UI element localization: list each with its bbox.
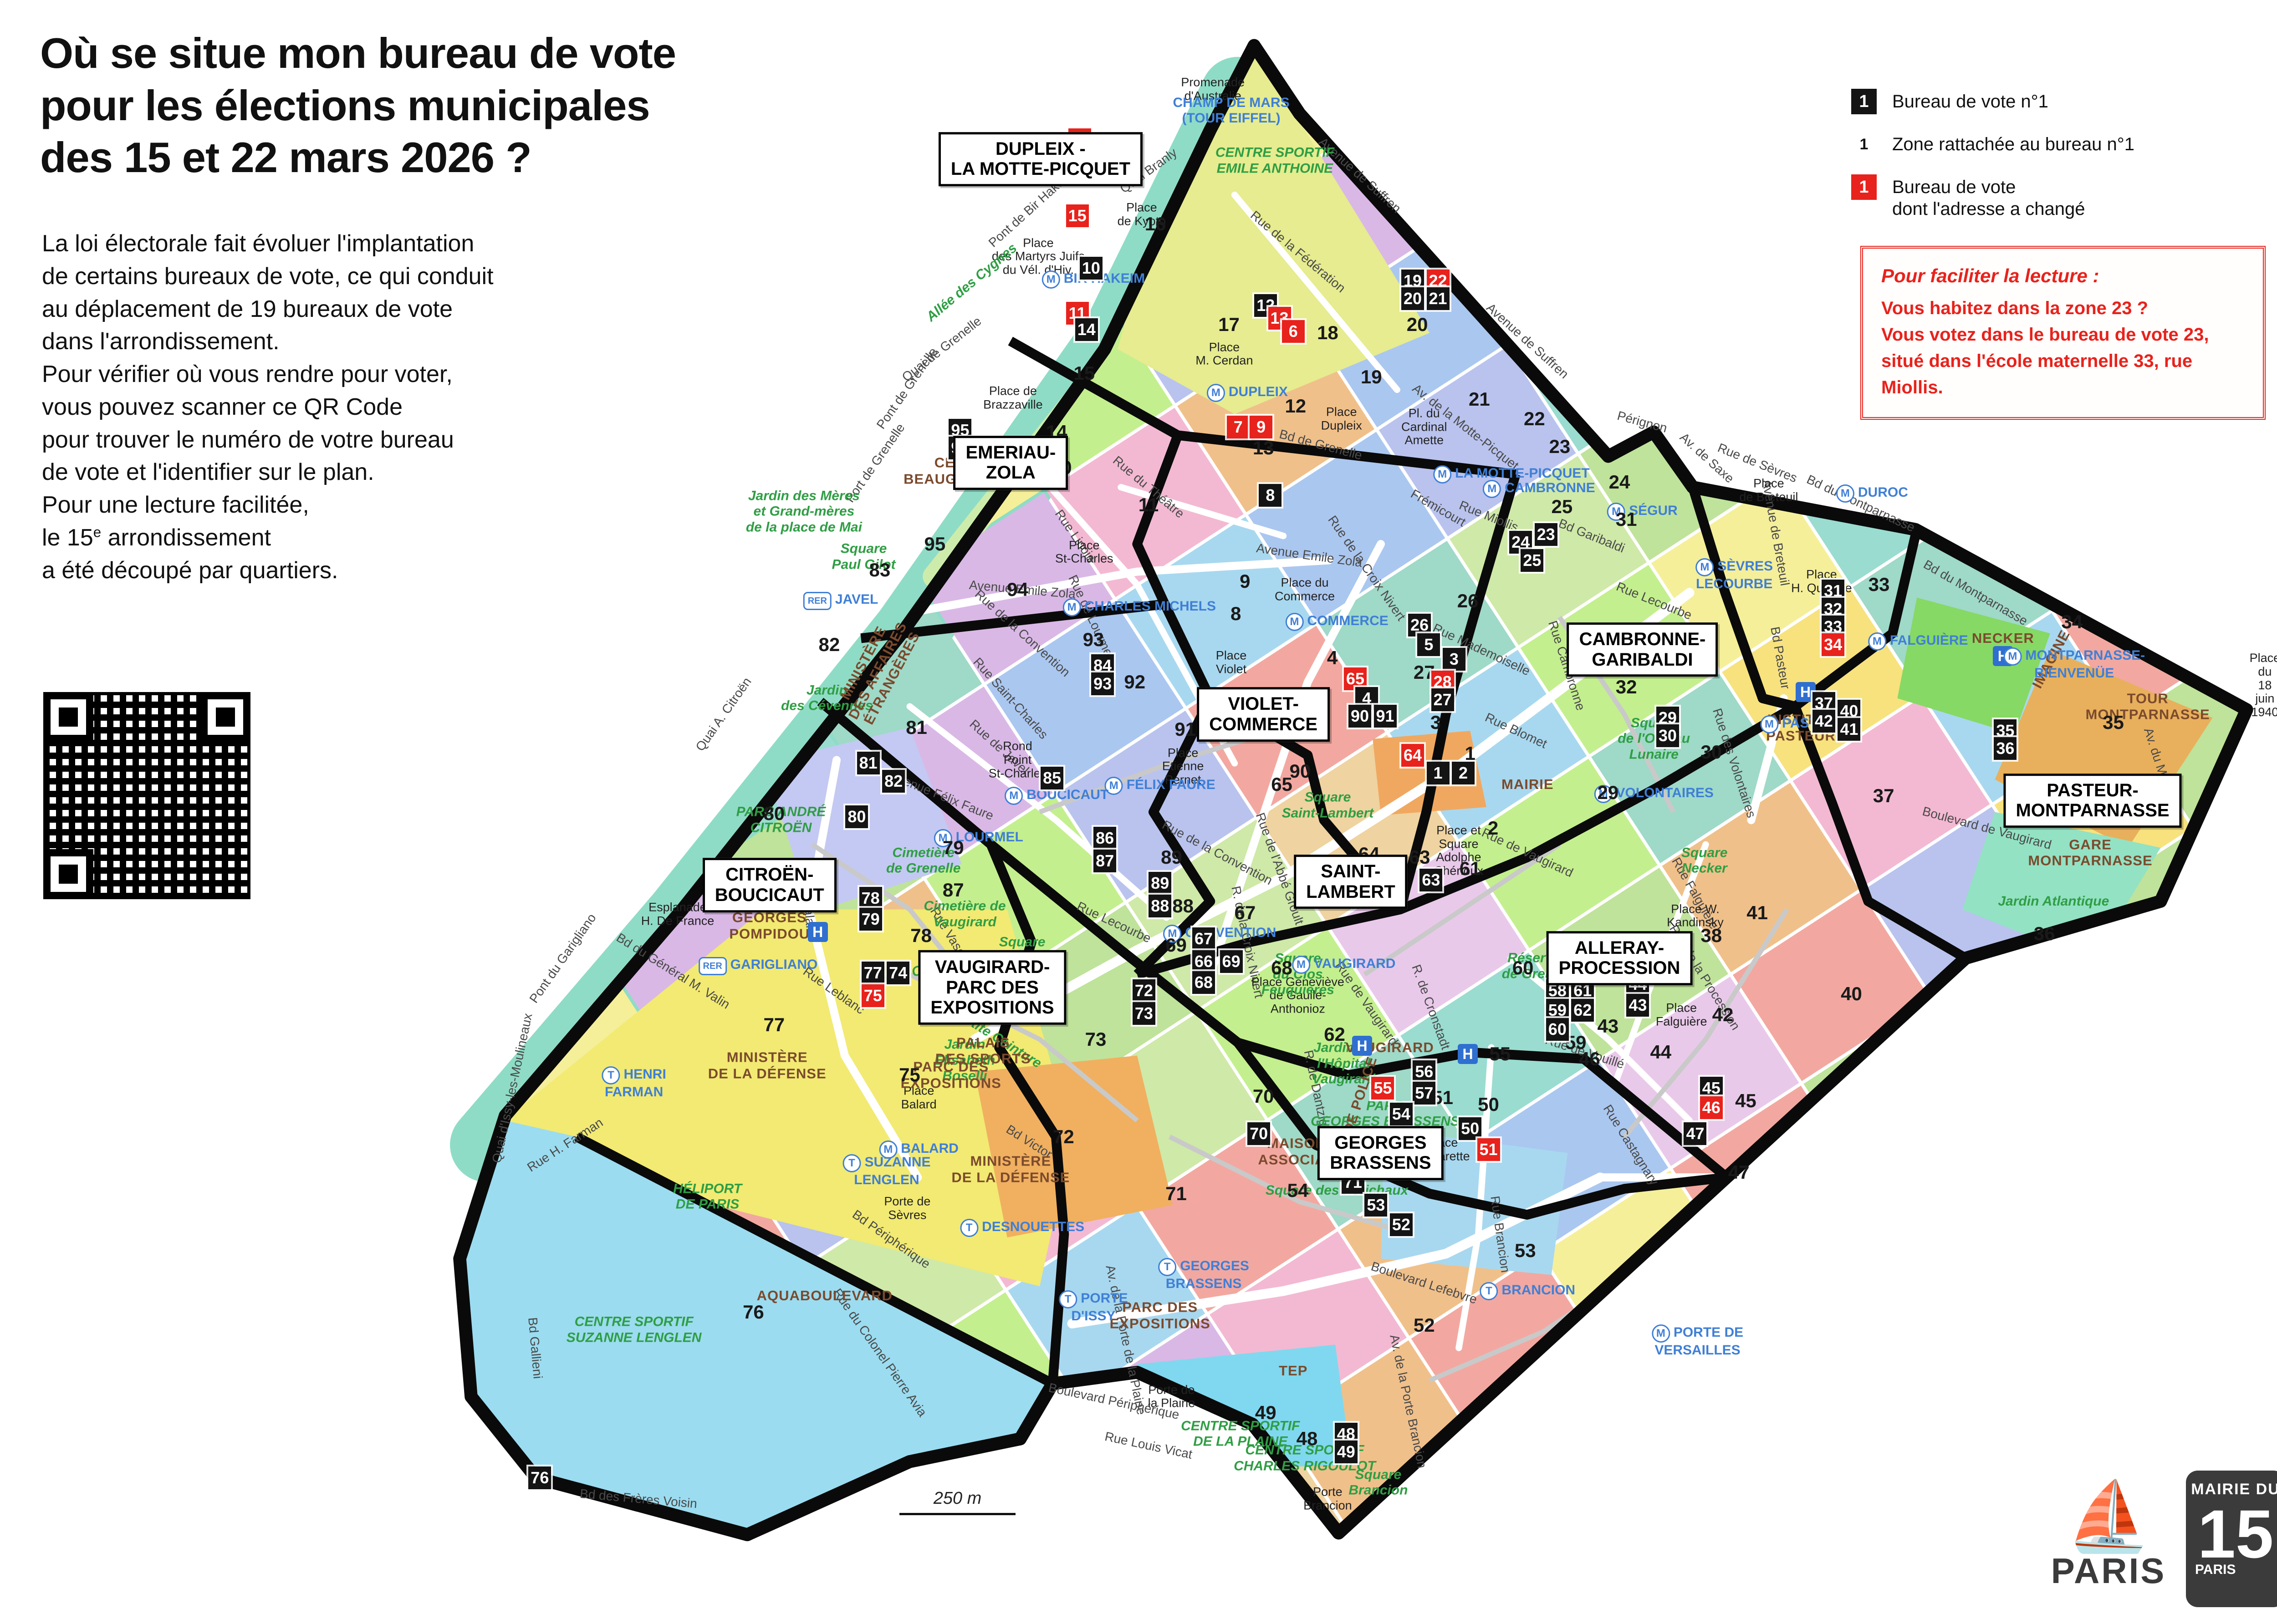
reading-help-line: Vous votez dans le bureau de vote 23, (1881, 321, 2245, 348)
paris-logo: ⛵ PARIS (2040, 1482, 2177, 1592)
legend-item-label: Zone rattachée au bureau n°1 (1892, 132, 2134, 155)
scale-label: 250 m (899, 1489, 1016, 1508)
scale-bar: 250 m (899, 1489, 1016, 1515)
page-title: Où se situe mon bureau de votepour les é… (40, 27, 723, 184)
paris-boat-icon: ⛵ (2040, 1482, 2177, 1550)
intro-paragraph: La loi électorale fait évoluer l'implant… (42, 228, 679, 587)
reading-help-line: Vous habitez dans la zone 23 ? (1881, 295, 2245, 321)
poster-page: 1617182019212215141011131298959483939291… (0, 0, 2277, 1624)
reading-help-line: situé dans l'école maternelle 33, rue Mi… (1881, 348, 2245, 401)
qr-finder-bl (43, 849, 93, 899)
map-legend: 1Bureau de vote n°11Zone rattachée au bu… (1851, 89, 2261, 237)
qr-finder-tl (43, 692, 93, 742)
legend-item: 1Bureau de vote n°1 (1851, 89, 2261, 114)
reading-help-title: Pour faciliter la lecture : (1881, 265, 2245, 287)
legend-item: 1Bureau de votedont l'adresse a changé (1851, 174, 2261, 220)
mairie-logo-number: 15 (2186, 1498, 2277, 1570)
reading-help-box: Pour faciliter la lecture : Vous habitez… (1860, 246, 2266, 420)
reading-help-lines: Vous habitez dans la zone 23 ?Vous votez… (1881, 295, 2245, 401)
qr-code (43, 692, 250, 899)
scale-line (899, 1513, 1016, 1515)
legend-red-badge-icon: 1 (1851, 174, 1877, 200)
legend-item-label: Bureau de votedont l'adresse a changé (1892, 174, 2085, 220)
legend-item-label: Bureau de vote n°1 (1892, 89, 2048, 112)
mairie-15-logo: MAIRIE DU 15 PARIS (2186, 1471, 2277, 1607)
legend-plain-number-icon: 1 (1851, 132, 1877, 157)
legend-item: 1Zone rattachée au bureau n°1 (1851, 132, 2261, 157)
legend-black-badge-icon: 1 (1851, 89, 1877, 114)
qr-finder-tr (200, 692, 250, 742)
paris-logo-text: PARIS (2040, 1550, 2177, 1592)
